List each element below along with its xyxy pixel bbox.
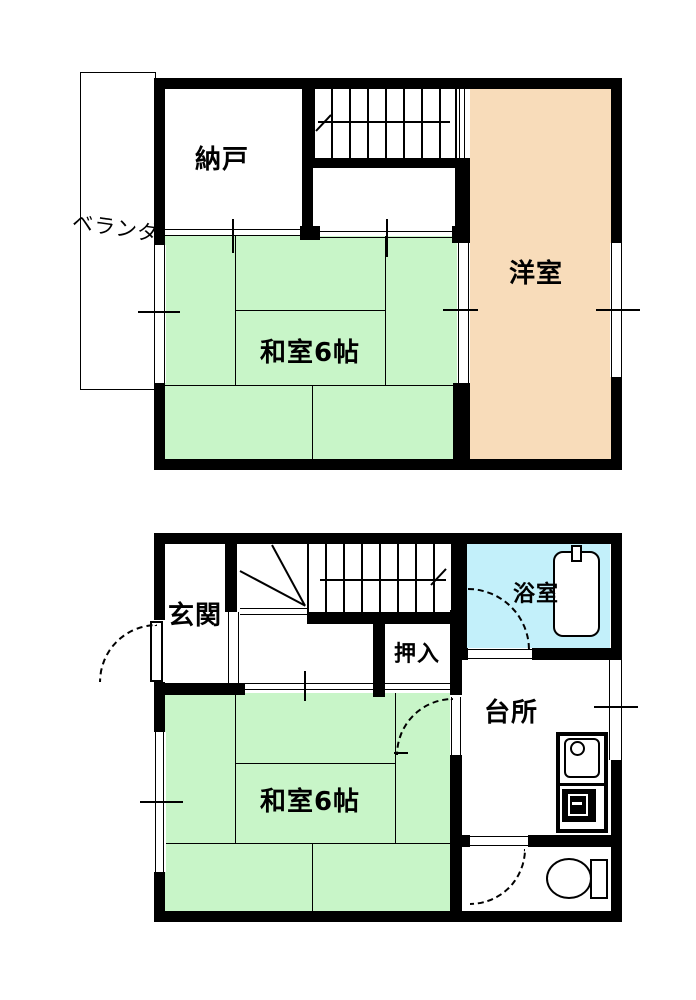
door-swing-arc xyxy=(99,624,157,682)
opening-tick xyxy=(232,219,234,253)
bathtub-faucet xyxy=(571,545,582,562)
closet-label: 押入 xyxy=(385,638,449,666)
stair-landing-line xyxy=(240,608,307,609)
entrance-label: 玄関 xyxy=(161,597,229,629)
sliding-door-line xyxy=(245,689,373,690)
wall xyxy=(154,911,622,922)
wall xyxy=(455,544,467,648)
sink-drain xyxy=(570,741,585,756)
wall xyxy=(450,755,462,835)
stairs-center-line xyxy=(318,121,450,123)
wall xyxy=(373,612,385,697)
toilet-tank xyxy=(590,859,608,899)
stair-landing-line xyxy=(240,614,307,615)
storage-label: 納戸 xyxy=(172,141,272,173)
sliding-door-line xyxy=(245,683,373,684)
tatami-line xyxy=(235,310,385,311)
wall xyxy=(313,158,457,168)
tatami-line xyxy=(312,385,313,459)
floor-plan-canvas: ベランダ 納戸 洋室 和室6帖 xyxy=(0,0,696,1000)
stairs-center-line xyxy=(320,579,446,581)
stairs-side-line xyxy=(464,89,465,158)
door-line xyxy=(460,697,461,755)
stairs-side-line xyxy=(459,89,460,158)
opening-tick xyxy=(140,801,183,803)
japanese-room-2f-label: 和室6帖 xyxy=(235,334,385,366)
door-swing-arc xyxy=(470,849,526,905)
stairs-2f xyxy=(313,89,457,158)
bath-label: 浴室 xyxy=(505,578,567,606)
wall xyxy=(453,383,470,459)
stove-burner-mark xyxy=(572,802,582,805)
tatami-line xyxy=(395,693,396,843)
opening-tick xyxy=(594,706,638,708)
wall xyxy=(154,78,622,89)
window-frame xyxy=(164,245,165,383)
japanese-room-1f-label: 和室6帖 xyxy=(235,783,385,815)
door-line xyxy=(470,845,528,846)
toilet-bowl xyxy=(546,858,592,899)
wall xyxy=(154,533,622,544)
window-frame xyxy=(621,660,622,760)
wall xyxy=(154,683,245,695)
tatami-line xyxy=(385,236,386,385)
window-frame xyxy=(609,660,610,760)
window-frame xyxy=(458,243,459,385)
sliding-door-line xyxy=(385,683,450,684)
tatami-line xyxy=(165,843,450,844)
sliding-door-line xyxy=(385,689,450,690)
western-room-label: 洋室 xyxy=(486,255,586,287)
stove-burner xyxy=(568,794,588,816)
opening-tick xyxy=(443,309,478,311)
door-line xyxy=(468,658,532,659)
tatami-line xyxy=(165,385,457,386)
opening-tick xyxy=(596,309,640,311)
wall xyxy=(302,89,313,228)
wall-pillar xyxy=(452,226,470,243)
sink-unit-divider xyxy=(556,783,608,786)
tatami-line xyxy=(235,693,236,843)
wall-pillar xyxy=(300,226,320,240)
wall xyxy=(450,835,462,922)
door-line xyxy=(238,612,239,683)
kitchen-label: 台所 xyxy=(482,696,540,724)
opening-tick xyxy=(304,671,306,701)
door-leaf-tick xyxy=(394,752,408,754)
window-frame xyxy=(154,245,155,383)
door-line xyxy=(470,836,528,837)
window-frame xyxy=(468,243,469,385)
tatami-line xyxy=(235,763,395,764)
opening-tick xyxy=(386,219,388,257)
opening-tick xyxy=(138,311,180,313)
wall xyxy=(154,459,622,470)
tatami-line xyxy=(312,843,313,911)
